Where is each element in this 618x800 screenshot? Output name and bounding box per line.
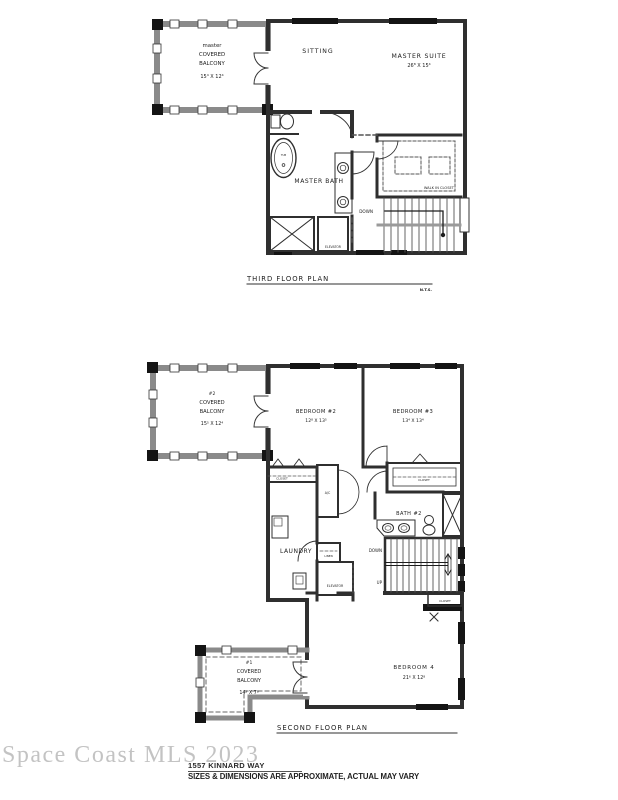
walk-in-closet-label: WALK IN CLOSET — [424, 186, 455, 190]
bedroom2-dims: 12⁸ X 13⁵ — [305, 418, 327, 424]
balcony-label-1: master — [202, 43, 222, 49]
nts-label: N.T.S. — [420, 287, 433, 292]
third-floor-title: THIRD FLOOR PLAN — [246, 275, 329, 283]
closet-label-3: CLOSET — [439, 599, 451, 603]
bedroom4-label: BEDROOM 4 — [393, 665, 434, 671]
balcony-label-2: COVERED — [199, 52, 225, 58]
sitting-label: SITTING — [302, 48, 333, 55]
disclaimer-text: SIZES & DIMENSIONS ARE APPROXIMATE, ACTU… — [188, 772, 419, 781]
bedroom3-dims: 13⁴ X 13⁴ — [402, 418, 424, 424]
bath2-shower — [443, 494, 462, 536]
ac-label: A/C — [325, 491, 331, 495]
closet-label-1: CLOSET — [276, 477, 288, 481]
master-suite-label: MASTER SUITE — [391, 53, 446, 60]
down2-label: DOWN — [369, 548, 382, 553]
stairs2 — [385, 538, 462, 593]
third-floor-plan: master COVERED BALCONY 15⁴ X 12⁴ WALK IN… — [152, 18, 469, 292]
bath2-label: BATH #2 — [396, 511, 422, 517]
balcony1-room: #1 COVERED BALCONY 14² X 7⁸ — [195, 645, 311, 723]
balcony-label-3: BALCONY — [199, 61, 225, 67]
balcony2-room: #2 COVERED BALCONY 15⁵ X 12⁴ — [147, 362, 273, 461]
master-bath-label: MASTER BATH — [294, 178, 343, 185]
down-label: DOWN — [359, 209, 373, 214]
shower-icon — [270, 217, 314, 251]
floor-plan-canvas: master COVERED BALCONY 15⁴ X 12⁴ WALK IN… — [0, 0, 618, 800]
master-balcony-room: master COVERED BALCONY 15⁴ X 12⁴ — [152, 19, 273, 115]
stair-window — [460, 198, 469, 232]
balcony-window-posts — [153, 20, 237, 114]
bedroom4-dims: 21⁶ X 12⁸ — [403, 675, 425, 681]
bath-closet — [387, 454, 462, 492]
linen-label: LINEN — [324, 554, 332, 558]
balcony1-label-3: BALCONY — [237, 678, 262, 684]
elevator-label: ELEVATOR — [325, 245, 342, 249]
bath2-door — [367, 471, 388, 492]
door-arcs — [322, 112, 398, 174]
second-floor-outline — [268, 366, 462, 707]
balcony-corner-posts — [152, 19, 273, 115]
second-floor-title: SECOND FLOOR PLAN — [277, 724, 368, 732]
tub-label: TUB — [281, 153, 286, 157]
laundry-label: LAUNDRY — [280, 548, 312, 555]
ac-closet — [317, 465, 359, 517]
balcony-dims: 15⁴ X 12⁴ — [200, 74, 223, 80]
walk-in-closet — [383, 141, 455, 191]
up-label: UP — [377, 580, 383, 585]
balcony2-label-3: BALCONY — [200, 409, 226, 415]
balcony1-label-2: COVERED — [237, 669, 262, 675]
balcony2-label-1: #2 — [209, 391, 216, 397]
elevator2 — [317, 562, 353, 595]
closet-label-2: CLOSET — [418, 478, 430, 482]
stairs — [378, 198, 460, 252]
bedroom3-label: BEDROOM #3 — [393, 409, 433, 415]
bath2-toilet — [423, 516, 435, 536]
linen-closet — [317, 543, 340, 562]
floor-plan-page: master COVERED BALCONY 15⁴ X 12⁴ WALK IN… — [0, 0, 618, 800]
elevator2-label: ELEVATOR — [327, 584, 344, 588]
tub-icon — [271, 139, 296, 178]
toilet-icon — [271, 114, 294, 129]
balcony2-label-2: COVERED — [199, 400, 224, 406]
balcony1-dims: 14² X 7⁸ — [239, 690, 258, 696]
second-floor-plan: #2 COVERED BALCONY 15⁵ X 12⁴ CLOSET — [147, 362, 465, 733]
bath2-vanity — [377, 520, 415, 536]
balcony2-dims: 15⁵ X 12⁴ — [201, 421, 223, 427]
bedroom3-door — [366, 446, 387, 467]
bedroom4-door-mark — [430, 613, 438, 621]
master-suite-dims: 26⁸ X 15⁴ — [407, 63, 430, 69]
address-line: 1557 KINNARD WAY — [188, 761, 302, 772]
balcony1-label-1: #1 — [246, 660, 253, 666]
opening-dashed — [352, 135, 377, 242]
bedroom2-label: BEDROOM #2 — [296, 409, 336, 415]
